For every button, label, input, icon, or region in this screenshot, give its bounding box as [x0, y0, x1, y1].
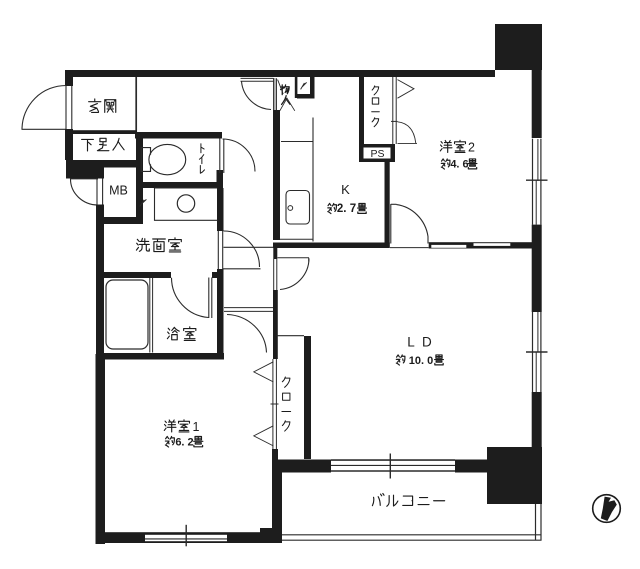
svg-text:K: K	[341, 182, 350, 197]
svg-text:6. 2: 6. 2	[175, 437, 193, 449]
svg-text:10. 0: 10. 0	[409, 355, 433, 367]
svg-text:L D: L D	[407, 335, 434, 350]
svg-text:1: 1	[193, 420, 200, 434]
svg-text:2. 7: 2. 7	[337, 203, 356, 215]
svg-text:PS: PS	[370, 148, 384, 160]
svg-text:2: 2	[468, 141, 475, 155]
svg-text:MB: MB	[109, 184, 128, 198]
svg-text:4. 6: 4. 6	[450, 159, 468, 171]
